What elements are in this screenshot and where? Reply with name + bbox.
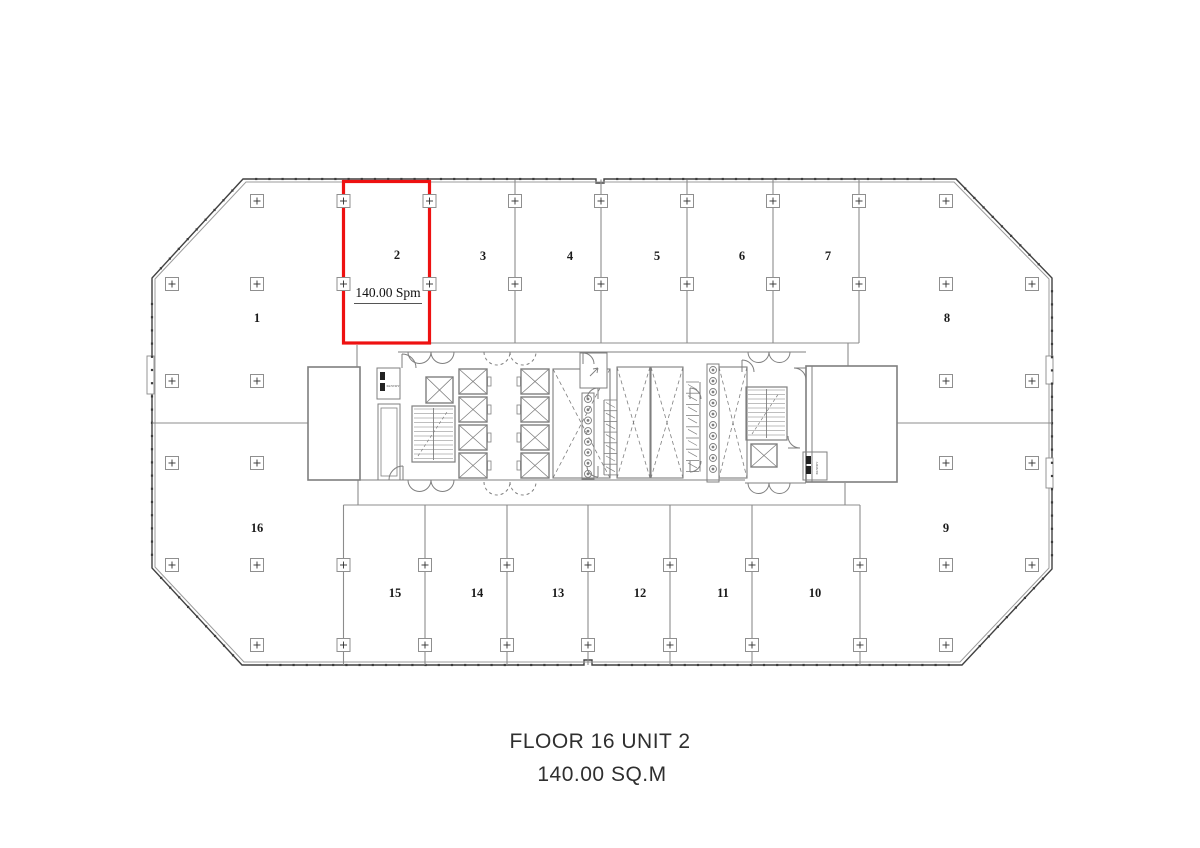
mullion-tick [697, 664, 699, 666]
door-arc-pantry2 [788, 436, 800, 448]
column-marker [251, 639, 264, 652]
mullion-tick [801, 178, 803, 180]
mullion-tick [644, 664, 646, 666]
column-marker [509, 278, 522, 291]
column-marker [664, 639, 677, 652]
unit-number-7: 7 [825, 249, 831, 263]
pantry-counter-1a [380, 372, 385, 380]
mullion-tick [935, 664, 937, 666]
mullion-tick [921, 664, 923, 666]
mullion-tick [557, 664, 559, 666]
unit-number-16: 16 [251, 521, 264, 535]
column-marker [940, 457, 953, 470]
mullion-tick [334, 178, 336, 180]
mullion-tick [411, 664, 413, 666]
unit-number-6: 6 [739, 249, 745, 263]
mullion-tick [869, 664, 871, 666]
mullion-tick [1051, 528, 1053, 530]
mullion-tick [282, 178, 284, 180]
mullion-tick [178, 596, 180, 598]
column-marker [337, 559, 350, 572]
louver-arcs-stair2-bottom [748, 483, 790, 494]
mullion-tick [643, 178, 645, 180]
mullion-tick [882, 664, 884, 666]
column-marker [940, 559, 953, 572]
mullion-tick [359, 664, 361, 666]
lobby-arc-top [484, 352, 536, 365]
elevator-shaft [517, 397, 549, 422]
mullion-tick [374, 178, 376, 180]
mullion-tick [695, 178, 697, 180]
outer-wall [152, 179, 1052, 665]
unit-number-13: 13 [552, 586, 565, 600]
mullion-tick [1051, 330, 1053, 332]
mullion-tick [1051, 435, 1053, 437]
column-marker [853, 278, 866, 291]
mullion-tick [1042, 578, 1044, 580]
mullion-tick [187, 238, 189, 240]
mullion-tick [1051, 303, 1053, 305]
mullion-tick [1028, 254, 1030, 256]
area-label: 140.00 Spm [355, 285, 421, 300]
mullion-tick [559, 178, 561, 180]
mullion-tick [920, 178, 922, 180]
mullion-tick [213, 209, 215, 211]
mullion-tick [1019, 244, 1021, 246]
mullion-tick [964, 187, 966, 189]
door-arc-lobby-nw [402, 354, 416, 368]
mullion-tick [1051, 501, 1053, 503]
mullion-tick [279, 664, 281, 666]
mullion-tick [151, 316, 153, 318]
mullion-tick [814, 178, 816, 180]
mullion-tick [1006, 616, 1008, 618]
caption-line2: 140.00 SQ.M [537, 763, 666, 786]
column-marker [940, 375, 953, 388]
mullion-tick [1051, 409, 1053, 411]
mullion-tick [827, 178, 829, 180]
mullion-tick [775, 178, 777, 180]
stair-2 [746, 387, 787, 440]
column-marker [501, 559, 514, 572]
mullion-tick [1038, 263, 1040, 265]
mullion-tick [372, 664, 374, 666]
mullion-tick [908, 664, 910, 666]
mullion-tick [1051, 356, 1053, 358]
mullion-tick [605, 664, 607, 666]
ahu-room-left [308, 367, 360, 480]
service-elevator-1 [426, 377, 453, 403]
mullion-tick [151, 395, 153, 397]
mullion-tick [748, 178, 750, 180]
mullion-tick [789, 664, 791, 666]
exit-door-room [580, 353, 607, 388]
building-outline [147, 178, 1053, 666]
service-core [308, 352, 897, 495]
mullion-tick [223, 645, 225, 647]
mullion-tick [293, 664, 295, 666]
mullion-tick [1051, 369, 1053, 371]
mullion-tick [151, 527, 153, 529]
unit-number-10: 10 [809, 586, 822, 600]
mullion-tick [517, 664, 519, 666]
mullion-tick [295, 178, 297, 180]
unit-number-8: 8 [944, 311, 950, 325]
elevator-shaft [751, 444, 777, 467]
mullion-tick [169, 257, 171, 259]
door-arc-ahu-right [794, 368, 806, 380]
column-marker [582, 559, 595, 572]
mullion-tick [803, 664, 805, 666]
elevator-shaft [459, 425, 491, 450]
mullion-tick [1051, 449, 1053, 451]
column-marker [940, 639, 953, 652]
mullion-tick [842, 664, 844, 666]
floor-plan-drawing: 140.00 Spm 12345678910111213141516 PANTR… [0, 0, 1200, 848]
mullion-tick [1051, 554, 1053, 556]
mullion-tick [997, 626, 999, 628]
mullion-tick [477, 664, 479, 666]
column-marker [166, 457, 179, 470]
column-marker [854, 639, 867, 652]
column-marker [940, 195, 953, 208]
mullion-tick [722, 178, 724, 180]
core-text-labels: PANTRYPANTRY [386, 384, 819, 475]
window-mullion-ticks [151, 178, 1053, 666]
mullion-tick [1051, 383, 1053, 385]
mullion-tick [151, 448, 153, 450]
column-marker [337, 639, 350, 652]
stair-flight [746, 387, 787, 440]
mullion-tick [992, 216, 994, 218]
service-elevator-2 [751, 444, 777, 467]
mullion-tick [1033, 587, 1035, 589]
mullion-tick [232, 654, 234, 656]
mullion-tick [491, 664, 493, 666]
mullion-tick [151, 343, 153, 345]
mullion-tick [710, 664, 712, 666]
x-shaft-room [617, 367, 650, 478]
column-marker [251, 457, 264, 470]
mullion-tick [151, 501, 153, 503]
mullion-tick [398, 664, 400, 666]
mullion-tick [414, 178, 416, 180]
mullion-tick [160, 577, 162, 579]
column-marker [166, 278, 179, 291]
mullion-tick [893, 178, 895, 180]
mullion-tick [321, 178, 323, 180]
mullion-tick [169, 586, 171, 588]
unit-number-11: 11 [717, 586, 729, 600]
mullion-tick [776, 664, 778, 666]
mullion-tick [151, 514, 153, 516]
mullion-tick [532, 178, 534, 180]
mullion-tick [332, 664, 334, 666]
mullion-tick [854, 178, 856, 180]
door-arc-lobby-sw [389, 466, 403, 480]
selected-unit-region[interactable] [344, 182, 430, 344]
mullion-tick [160, 267, 162, 269]
unit-number-9: 9 [943, 521, 949, 535]
mullion-tick [440, 178, 442, 180]
unit-number-12: 12 [634, 586, 647, 600]
wc-strip [707, 364, 719, 482]
stall-group [686, 382, 700, 472]
mullion-tick [841, 178, 843, 180]
column-marker [166, 559, 179, 572]
elevator-shaft [459, 397, 491, 422]
mullion-tick [151, 409, 153, 411]
mullion-tick [763, 664, 765, 666]
x-shaft-room [719, 367, 747, 478]
mullion-tick [1051, 515, 1053, 517]
mullion-tick [1051, 343, 1053, 345]
pantry-label: PANTRY [815, 461, 819, 475]
mullion-tick [504, 664, 506, 666]
mullion-tick [880, 178, 882, 180]
louver-arcs-stair2-top [748, 352, 790, 363]
mullion-tick [570, 664, 572, 666]
column-marker [509, 195, 522, 208]
mullion-tick [453, 178, 455, 180]
stair-1 [412, 406, 455, 462]
mullion-tick [546, 178, 548, 180]
mullion-tick [1051, 290, 1053, 292]
shaft-room-inner [381, 408, 397, 476]
column-marker [664, 559, 677, 572]
mullion-tick [1051, 475, 1053, 477]
mullion-tick [656, 178, 658, 180]
unit-number-5: 5 [654, 249, 660, 263]
mullion-tick [222, 199, 224, 201]
mullion-tick [631, 664, 633, 666]
mullion-tick [438, 664, 440, 666]
column-marker [853, 195, 866, 208]
mullion-tick [788, 178, 790, 180]
column-marker [1026, 457, 1039, 470]
lobby-arc-bottom [484, 482, 536, 495]
mullion-tick [761, 178, 763, 180]
door-arc-wc1-bottom [587, 466, 598, 477]
pantry-counter-2a [806, 456, 811, 464]
mullion-tick [178, 248, 180, 250]
column-marker [501, 639, 514, 652]
elevator-shaft [459, 453, 491, 478]
mullion-tick [204, 219, 206, 221]
mullion-tick [480, 178, 482, 180]
mullion-tick [196, 616, 198, 618]
unit-number-15: 15 [389, 586, 402, 600]
toilet-stalls [604, 382, 700, 475]
mullion-tick [319, 664, 321, 666]
mullion-tick [1051, 462, 1053, 464]
door-arc-wc2-bottom [690, 461, 701, 472]
mullion-tick [348, 178, 350, 180]
mullion-tick [255, 178, 257, 180]
column-marker [1026, 278, 1039, 291]
column-marker [419, 559, 432, 572]
caption-line1: FLOOR 16 UNIT 2 [510, 730, 691, 753]
wc-strip [582, 393, 594, 479]
mullion-tick [973, 197, 975, 199]
mullion-tick [543, 664, 545, 666]
mullion-tick [151, 554, 153, 556]
mullion-tick [151, 369, 153, 371]
column-marker [423, 278, 436, 291]
column-marker [767, 278, 780, 291]
mullion-tick [1051, 541, 1053, 543]
mullion-tick [151, 541, 153, 543]
unit-dividers [152, 180, 1052, 666]
inner-wall-line [155, 182, 1049, 662]
ahu-room-right [806, 366, 897, 482]
caption: FLOOR 16 UNIT 2 140.00 SQ.M [510, 730, 691, 786]
mullion-tick [151, 303, 153, 305]
mullion-tick [829, 664, 831, 666]
column-marker [337, 195, 350, 208]
mullion-tick [1015, 606, 1017, 608]
mullion-tick [948, 664, 950, 666]
mullion-tick [530, 664, 532, 666]
column-marker [595, 278, 608, 291]
window-break-left [147, 356, 154, 394]
mullion-tick [867, 178, 869, 180]
stair-flight [412, 406, 455, 462]
mullion-tick [629, 178, 631, 180]
elevator-shaft [517, 453, 549, 478]
mullion-tick [187, 606, 189, 608]
mullion-tick [723, 664, 725, 666]
mullion-tick [737, 664, 739, 666]
mullion-tick [616, 178, 618, 180]
column-marker [251, 375, 264, 388]
column-marker [1026, 375, 1039, 388]
unit-number-3: 3 [480, 249, 486, 263]
mullion-tick [151, 461, 153, 463]
mullion-tick [308, 178, 310, 180]
elevator-shaft [459, 369, 491, 394]
mullion-tick [709, 178, 711, 180]
mullion-tick [519, 178, 521, 180]
mullion-tick [151, 329, 153, 331]
mullion-tick [385, 664, 387, 666]
mullion-tick [231, 189, 233, 191]
mullion-tick [151, 475, 153, 477]
column-marker [251, 278, 264, 291]
column-marker [1026, 559, 1039, 572]
column-marker [251, 559, 264, 572]
mullion-tick [466, 178, 468, 180]
mullion-tick [400, 178, 402, 180]
mullion-tick [196, 228, 198, 230]
mullion-tick [345, 664, 347, 666]
mullion-tick [907, 178, 909, 180]
pantry-counter-1b [380, 383, 385, 391]
mullion-tick [151, 382, 153, 384]
mullion-tick [451, 664, 453, 666]
mullion-tick [671, 664, 673, 666]
elevator-shaft [426, 377, 453, 403]
mullion-tick [464, 664, 466, 666]
mullion-tick [1051, 317, 1053, 319]
mullion-tick [1010, 235, 1012, 237]
mullion-tick [684, 664, 686, 666]
mullion-tick [205, 625, 207, 627]
column-marker [681, 195, 694, 208]
unit-number-4: 4 [567, 249, 574, 263]
column-marker [746, 559, 759, 572]
column-marker [423, 195, 436, 208]
mullion-tick [618, 664, 620, 666]
column-marker [582, 639, 595, 652]
column-marker [681, 278, 694, 291]
x-shaft-room [651, 367, 683, 478]
unit-number-14: 14 [471, 586, 484, 600]
louver-arcs-stair1-bottom [408, 480, 454, 492]
pantry-counter-2b [806, 466, 811, 474]
mullion-tick [669, 178, 671, 180]
unit-number-1: 1 [254, 311, 260, 325]
mullion-tick [816, 664, 818, 666]
mullion-tick [933, 178, 935, 180]
mullion-tick [266, 664, 268, 666]
mullion-tick [268, 178, 270, 180]
mullion-tick [572, 178, 574, 180]
mullion-tick [387, 178, 389, 180]
mullion-tick [735, 178, 737, 180]
mullion-tick [361, 178, 363, 180]
mullion-tick [506, 178, 508, 180]
column-marker [746, 639, 759, 652]
mullion-tick [895, 664, 897, 666]
mullion-tick [979, 645, 981, 647]
unit-number-2: 2 [394, 248, 400, 262]
mullion-tick [306, 664, 308, 666]
mullion-tick [1024, 597, 1026, 599]
column-marker [166, 375, 179, 388]
mullion-tick [988, 635, 990, 637]
mullion-tick [214, 635, 216, 637]
mullion-tick [855, 664, 857, 666]
column-marker [337, 278, 350, 291]
floor-plan-page: 140.00 Spm 12345678910111213141516 PANTR… [0, 0, 1200, 848]
mullion-tick [151, 488, 153, 490]
mullion-tick [427, 178, 429, 180]
mullion-tick [151, 435, 153, 437]
mullion-tick [493, 178, 495, 180]
column-marker [767, 195, 780, 208]
mullion-tick [1051, 396, 1053, 398]
mullion-tick [1001, 225, 1003, 227]
mullion-tick [682, 178, 684, 180]
elevator-shaft [517, 425, 549, 450]
column-marker [595, 195, 608, 208]
mullion-tick [1051, 488, 1053, 490]
column-marker [854, 559, 867, 572]
passenger-elevator-banks [459, 369, 549, 478]
door-arc-stair2 [742, 360, 754, 372]
column-marker [940, 278, 953, 291]
highlighted-unit-2: 140.00 Spm [344, 182, 430, 344]
mullion-tick [151, 356, 153, 358]
column-marker [419, 639, 432, 652]
elevator-shaft [517, 369, 549, 394]
mullion-tick [657, 664, 659, 666]
mullion-tick [982, 206, 984, 208]
pantry-label: PANTRY [386, 384, 400, 388]
column-marker [251, 195, 264, 208]
